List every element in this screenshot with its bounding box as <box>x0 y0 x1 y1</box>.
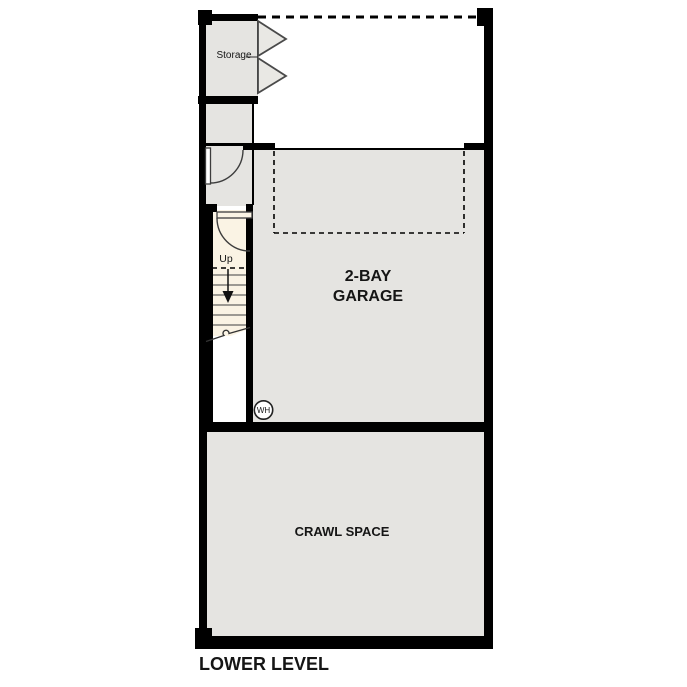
wall-stair-vestibule-divider <box>199 204 217 212</box>
garage-door-line <box>274 148 464 150</box>
stairs-up-label: Up <box>219 253 233 265</box>
water-heater-label: WH <box>257 406 271 415</box>
wall-bottom <box>195 636 493 649</box>
wall-thin-vestibule-right <box>252 99 254 145</box>
wall-garage-door-stub-left <box>243 143 275 150</box>
wall-garage-door-stub-right <box>464 143 486 150</box>
water-heater: WH <box>254 401 272 419</box>
entry-door-leaf <box>206 148 211 184</box>
wall-storage-bottom <box>198 96 258 104</box>
storage-label: Storage <box>216 50 251 61</box>
garage-label-line2: GARAGE <box>333 288 404 305</box>
crawl-space-label: CRAWL SPACE <box>295 524 390 539</box>
wall-left-stairwell <box>199 204 213 432</box>
garage-area <box>250 149 488 424</box>
wall-left-crawl <box>199 432 207 636</box>
wall-storage-top <box>198 14 258 21</box>
vestibule-area <box>203 99 254 145</box>
wall-garage-crawl-divider <box>199 422 493 432</box>
garage-label-line1: 2-BAY <box>345 268 392 285</box>
stair-door-leaf <box>217 212 252 218</box>
wall-door-header-line <box>206 143 244 146</box>
stair-void-area <box>213 330 246 422</box>
floor-plan-drawing: WH Storage Up 2-BAY GARAGE CRAWL SPACE L… <box>0 0 687 687</box>
level-title: LOWER LEVEL <box>199 654 329 674</box>
floor-plan-page: WH Storage Up 2-BAY GARAGE CRAWL SPACE L… <box>0 0 687 687</box>
wall-stairwell-right <box>246 204 253 424</box>
stairwell-area <box>213 210 246 336</box>
wall-thin-garage-left <box>252 145 254 205</box>
wall-right <box>484 8 493 649</box>
